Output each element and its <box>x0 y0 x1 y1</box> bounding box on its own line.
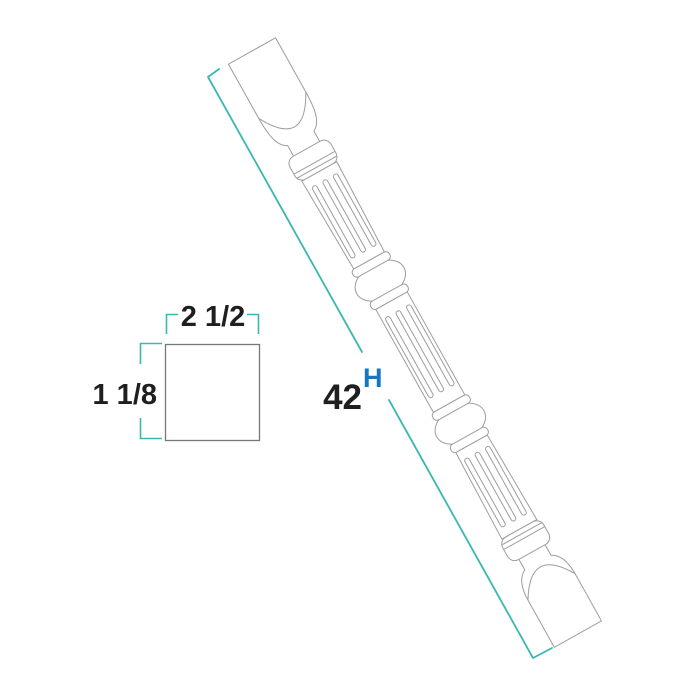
baluster-technical-drawing: 42 H 2 1/2 1 1/8 <box>0 0 700 700</box>
cross-section-height-label: 1 1/8 <box>93 379 158 411</box>
height-letter-label: H <box>363 363 383 393</box>
bottom-shoulder-right <box>545 539 575 580</box>
drawing-canvas: 42 H 2 1/2 1 1/8 <box>0 0 700 700</box>
cross-section-detail: 2 1/2 1 1/8 <box>93 301 260 441</box>
cross-section-width-label: 2 1/2 <box>181 301 246 333</box>
top-dimension-bracket-left <box>167 315 179 335</box>
top-shoulder-left <box>259 112 294 162</box>
height-value-label: 42 <box>323 378 362 417</box>
bottom-shoulder-left <box>508 559 538 600</box>
baluster-drawing <box>228 38 601 647</box>
side-dimension-bracket-top <box>141 344 163 365</box>
top-square-block <box>228 38 305 118</box>
side-dimension-bracket-bottom <box>141 418 163 439</box>
cross-section-square <box>166 345 260 441</box>
top-dimension-bracket-right <box>247 315 259 335</box>
top-shoulder-right <box>295 92 330 142</box>
bottom-square-block <box>528 574 601 647</box>
